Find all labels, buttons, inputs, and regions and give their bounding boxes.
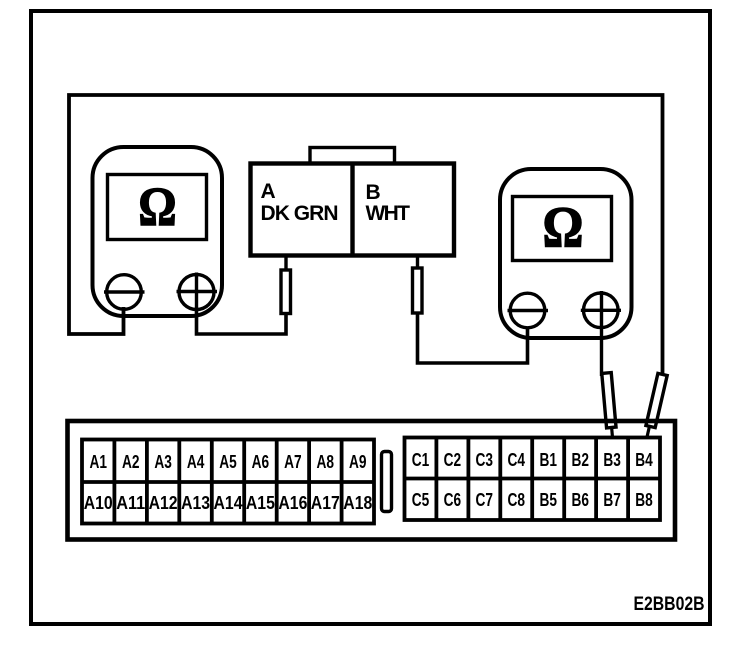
svg-text:A15: A15 bbox=[246, 493, 275, 513]
svg-text:A7: A7 bbox=[284, 452, 302, 472]
svg-text:A10: A10 bbox=[84, 493, 113, 513]
svg-text:A1: A1 bbox=[89, 452, 107, 472]
svg-text:A2: A2 bbox=[122, 452, 140, 472]
svg-text:C6: C6 bbox=[444, 490, 462, 510]
svg-text:C3: C3 bbox=[476, 450, 494, 470]
svg-text:DK GRN: DK GRN bbox=[261, 202, 339, 225]
svg-text:B8: B8 bbox=[635, 490, 653, 510]
svg-text:B4: B4 bbox=[635, 450, 653, 470]
svg-text:Ω: Ω bbox=[543, 194, 584, 259]
svg-text:B3: B3 bbox=[603, 450, 621, 470]
svg-text:A4: A4 bbox=[187, 452, 205, 472]
svg-text:A17: A17 bbox=[311, 493, 340, 513]
svg-text:A9: A9 bbox=[349, 452, 367, 472]
svg-text:A5: A5 bbox=[219, 452, 237, 472]
svg-text:C1: C1 bbox=[412, 450, 430, 470]
svg-text:B5: B5 bbox=[539, 490, 557, 510]
svg-text:A18: A18 bbox=[343, 493, 372, 513]
svg-text:A6: A6 bbox=[252, 452, 270, 472]
svg-text:B: B bbox=[366, 181, 381, 204]
svg-text:C7: C7 bbox=[476, 490, 494, 510]
svg-text:A3: A3 bbox=[154, 452, 172, 472]
svg-text:WHT: WHT bbox=[366, 202, 411, 225]
svg-text:A12: A12 bbox=[149, 493, 178, 513]
svg-text:B6: B6 bbox=[571, 490, 589, 510]
svg-text:E2BB02B: E2BB02B bbox=[634, 594, 705, 615]
svg-text:B2: B2 bbox=[571, 450, 589, 470]
svg-text:A: A bbox=[261, 180, 276, 203]
svg-text:A13: A13 bbox=[181, 493, 210, 513]
svg-text:C4: C4 bbox=[508, 450, 526, 470]
svg-text:A11: A11 bbox=[116, 493, 145, 513]
svg-text:A16: A16 bbox=[278, 493, 307, 513]
svg-text:C8: C8 bbox=[508, 490, 526, 510]
svg-text:B1: B1 bbox=[539, 450, 557, 470]
svg-text:A14: A14 bbox=[214, 493, 243, 513]
svg-text:C2: C2 bbox=[444, 450, 462, 470]
svg-text:A8: A8 bbox=[317, 452, 335, 472]
svg-text:Ω: Ω bbox=[138, 177, 176, 238]
svg-text:C5: C5 bbox=[412, 490, 430, 510]
svg-text:B7: B7 bbox=[603, 490, 621, 510]
